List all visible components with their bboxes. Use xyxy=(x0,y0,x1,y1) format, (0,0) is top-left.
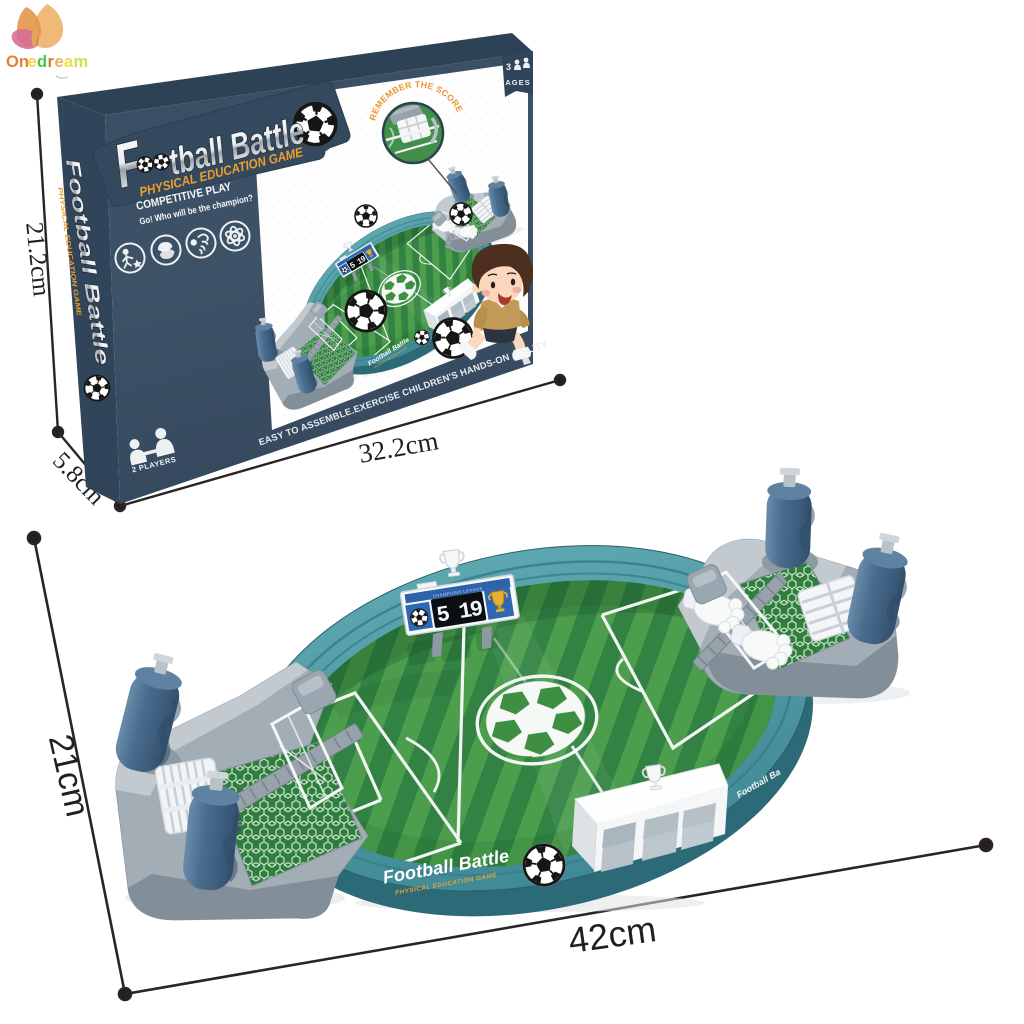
svg-text:On: On xyxy=(6,53,29,71)
svg-text:e: e xyxy=(55,53,64,71)
svg-text:3: 3 xyxy=(506,62,511,72)
svg-text:e: e xyxy=(28,53,37,71)
svg-text:m: m xyxy=(74,53,89,71)
svg-text:d: d xyxy=(37,53,47,71)
svg-text:r: r xyxy=(48,53,55,71)
svg-text:AGES: AGES xyxy=(505,78,530,87)
svg-text:a: a xyxy=(64,53,74,71)
